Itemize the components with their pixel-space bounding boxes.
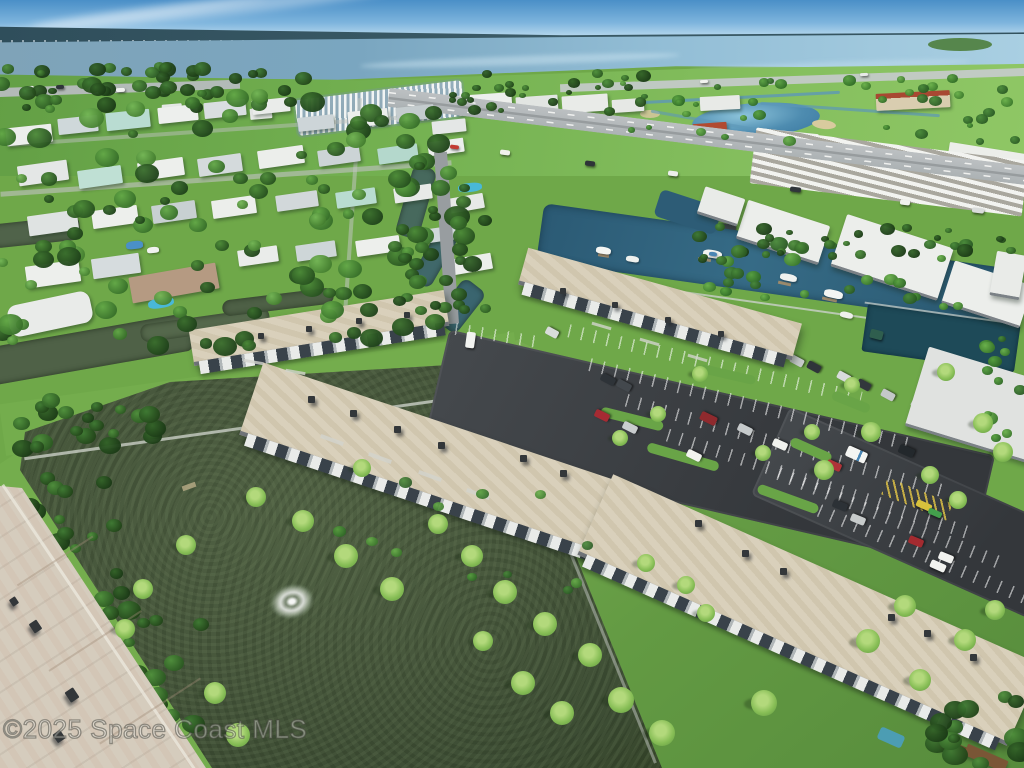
car xyxy=(806,360,822,374)
zone-neighborhood-trees xyxy=(177,316,196,331)
zone-lawn-shrubs xyxy=(399,477,412,487)
zone-creek-trees xyxy=(396,224,410,235)
zone-golf-trees xyxy=(983,108,995,117)
rooftop-vent xyxy=(560,288,566,294)
zone-right-edge-trees xyxy=(982,366,993,375)
zone-creek-trees xyxy=(451,288,467,301)
zone-neighborhood-trees xyxy=(147,336,170,354)
zone-lawn-shrubs xyxy=(582,541,593,550)
car-highway xyxy=(668,170,679,176)
zone-highway-scrub xyxy=(934,235,942,241)
zone-pond-bank-trees xyxy=(164,655,184,671)
zone-neighborhood-trees xyxy=(407,226,427,242)
palm-tree xyxy=(533,612,557,636)
palm-tree xyxy=(493,580,517,604)
palm-tree xyxy=(608,687,634,713)
zone-neighborhood-trees xyxy=(222,109,238,122)
zone-neighborhood-trees xyxy=(362,208,383,225)
zone-creek-trees xyxy=(463,256,482,271)
zone-neighborhood-trees xyxy=(300,92,325,112)
zone-highway-scrub xyxy=(765,234,774,241)
palm-tree xyxy=(844,377,860,393)
zone-right-edge-trees xyxy=(994,377,1003,384)
palm-tree xyxy=(204,682,226,704)
car xyxy=(880,388,896,402)
zone-shore-trees xyxy=(48,88,57,95)
zone-neighborhood-trees xyxy=(200,338,213,348)
zone-neighborhood-trees xyxy=(346,132,366,148)
zone-neighborhood-trees xyxy=(45,105,55,113)
zone-pond-bank-trees xyxy=(70,426,82,436)
zone-golf-trees xyxy=(783,136,795,146)
palm-tree xyxy=(380,577,404,601)
zone-golf-trees xyxy=(641,94,647,99)
zone-pond-bank-trees xyxy=(106,519,122,532)
zone-neighborhood-trees xyxy=(425,106,442,119)
zone-neighborhood-trees xyxy=(247,307,262,319)
zone-golf-trees xyxy=(714,84,721,90)
rooftop-vent xyxy=(612,302,618,308)
rooftop-vent xyxy=(306,326,312,332)
zone-neighborhood-trees xyxy=(323,288,336,299)
zone-neighborhood-trees xyxy=(79,267,90,276)
zone-creek-trees xyxy=(478,215,492,226)
zone-shore-trees xyxy=(194,62,211,76)
zone-creek-trees xyxy=(439,275,453,286)
zone-corner-foliage xyxy=(925,724,948,742)
palm-tree xyxy=(861,422,881,442)
zone-right-edge-trees xyxy=(1014,385,1024,394)
zone-shore-trees xyxy=(145,86,161,99)
rooftop-vent xyxy=(404,312,410,318)
zone-neighborhood-trees xyxy=(57,247,81,266)
blue-tarp-boat xyxy=(126,240,144,250)
zone-right-edge-trees xyxy=(1002,429,1012,437)
zone-shore-trees xyxy=(121,67,133,76)
zone-neighborhood-trees xyxy=(171,181,188,194)
zone-right-edge-trees xyxy=(991,434,1001,442)
zone-neighborhood-trees xyxy=(200,282,214,294)
rooftop-vent xyxy=(350,410,357,417)
zone-neighborhood-trees xyxy=(41,172,58,185)
zone-golf-trees xyxy=(947,74,958,83)
palm-tree xyxy=(894,595,916,617)
zone-neighborhood-trees xyxy=(452,243,468,256)
building-white xyxy=(700,95,741,111)
palm-tree xyxy=(334,544,358,568)
aerial-photo: ©2025 Space Coast MLS xyxy=(0,0,1024,768)
zone-golf-trees xyxy=(976,138,984,144)
zone-pond-bank-trees xyxy=(193,618,209,631)
rooftop-vent xyxy=(888,614,895,621)
palm-tree xyxy=(856,629,880,653)
zone-pond-bank-trees xyxy=(96,476,112,489)
zone-shore-trees xyxy=(505,88,516,97)
zone-lawn-shrubs xyxy=(571,578,583,587)
rooftop-vent xyxy=(780,568,787,575)
zone-neighborhood-trees xyxy=(0,258,8,267)
zone-neighborhood-trees xyxy=(388,170,411,188)
zone-condo-grounds xyxy=(939,303,947,310)
zone-highway-scrub xyxy=(762,251,770,257)
zone-golf-trees xyxy=(721,134,728,140)
zone-highway-scrub xyxy=(996,236,1003,242)
zone-highway-scrub xyxy=(854,230,863,237)
palm-tree xyxy=(814,460,834,480)
zone-shore-trees xyxy=(19,86,36,99)
car-causeway xyxy=(860,73,868,76)
palm-tree xyxy=(353,459,371,477)
zone-pond-bank-trees xyxy=(110,568,123,579)
zone-neighborhood-trees xyxy=(113,328,127,339)
zone-condo-grounds xyxy=(861,275,873,284)
zone-condo-grounds xyxy=(703,282,715,292)
zone-creek-trees xyxy=(430,301,441,309)
zone-creek-trees xyxy=(450,216,468,230)
zone-golf-trees xyxy=(675,99,684,106)
palm-tree xyxy=(937,363,955,381)
zone-neighborhood-trees xyxy=(242,340,256,351)
zone-shore-trees xyxy=(548,98,557,105)
rooftop-vent xyxy=(356,318,362,324)
zone-creek-trees xyxy=(415,306,426,315)
zone-lawn-shrubs xyxy=(503,571,512,578)
palm-tree xyxy=(292,510,314,532)
zone-neighborhood-trees xyxy=(128,130,138,138)
car-left-road xyxy=(116,88,125,92)
palm-tree xyxy=(650,406,666,422)
zone-neighborhood-trees xyxy=(191,260,204,270)
zone-highway-scrub xyxy=(786,230,793,236)
zone-highway-scrub xyxy=(1006,247,1015,254)
zone-neighborhood-trees xyxy=(135,216,145,224)
zone-neighborhood-trees xyxy=(73,200,95,218)
zone-neighborhood-trees xyxy=(67,227,83,240)
zone-corner-foliage xyxy=(1008,695,1024,708)
zone-highway-scrub xyxy=(824,240,835,249)
zone-neighborhood-trees xyxy=(251,89,268,103)
zone-lawn-shrubs xyxy=(467,573,477,581)
car-causeway xyxy=(700,80,708,83)
car-highway xyxy=(900,199,911,205)
zone-highway-scrub xyxy=(902,224,912,232)
boat xyxy=(147,246,160,253)
rooftop-vent xyxy=(560,470,567,477)
zone-corner-foliage xyxy=(948,734,960,744)
zone-neighborhood-trees xyxy=(95,148,119,167)
zone-shore-trees xyxy=(592,69,604,78)
zone-neighborhood-trees xyxy=(360,329,383,347)
palm-tree xyxy=(550,701,574,725)
zone-golf-trees xyxy=(748,98,758,106)
rooftop-vent xyxy=(695,520,702,527)
zone-golf-trees xyxy=(775,79,787,89)
zone-creek-trees xyxy=(409,275,426,289)
zone-neighborhood-trees xyxy=(329,332,342,342)
zone-pond-bank-trees xyxy=(108,429,119,437)
zone-shore-trees xyxy=(568,78,580,88)
zone-neighborhood-trees xyxy=(374,115,389,127)
rooftop-vent xyxy=(258,333,264,339)
palm-tree xyxy=(246,487,266,507)
zone-condo-grounds xyxy=(760,294,770,302)
zone-neighborhood-trees xyxy=(335,287,351,300)
zone-golf-trees xyxy=(682,111,690,118)
zone-neighborhood-trees xyxy=(249,184,268,200)
zone-neighborhood-trees xyxy=(237,200,248,209)
zone-lawn-shrubs xyxy=(366,537,378,547)
palm-tree xyxy=(973,413,993,433)
zone-neighborhood-trees xyxy=(310,213,326,226)
zone-pond-bank-trees xyxy=(149,615,163,626)
watermark: ©2025 Space Coast MLS xyxy=(3,716,307,742)
palm-tree xyxy=(578,643,602,667)
palm-tree xyxy=(755,445,771,461)
palm-tree xyxy=(133,579,153,599)
zone-pond-bank-trees xyxy=(82,413,94,422)
palm-tree xyxy=(954,629,976,651)
zone-neighborhood-trees xyxy=(103,205,116,215)
rooftop-vent xyxy=(308,396,315,403)
zone-pond-bank-trees xyxy=(13,417,29,430)
zone-condo-grounds xyxy=(750,281,760,289)
zone-neighborhood-trees xyxy=(338,260,361,279)
zone-condo-grounds xyxy=(731,268,745,279)
palm-tree xyxy=(511,671,535,695)
palm-tree xyxy=(115,619,135,639)
zone-neighborhood-trees xyxy=(154,291,172,305)
palm-tree xyxy=(677,576,695,594)
palm-tree xyxy=(461,545,483,567)
zone-shore-trees xyxy=(37,70,45,76)
zone-creek-trees xyxy=(398,253,411,264)
palm-tree xyxy=(921,466,939,484)
car-highway xyxy=(972,207,985,213)
zone-condo-grounds xyxy=(800,290,809,298)
zone-lawn-shrubs xyxy=(333,526,346,536)
car-highway xyxy=(500,149,511,155)
car xyxy=(544,326,559,339)
zone-corner-foliage xyxy=(957,700,980,718)
zone-pond-bank-trees xyxy=(54,515,65,524)
zone-shore-trees xyxy=(278,85,291,95)
palm-tree xyxy=(993,442,1013,462)
palm-tree xyxy=(985,600,1005,620)
zone-neighborhood-trees xyxy=(7,336,18,345)
zone-neighborhood-trees xyxy=(95,301,117,319)
zone-neighborhood-trees xyxy=(189,218,206,232)
zone-neighborhood-trees xyxy=(321,301,344,319)
zone-golf-trees xyxy=(767,78,774,84)
zone-pond-bank-trees xyxy=(42,393,60,408)
palm-tree xyxy=(473,631,493,651)
zone-right-edge-trees xyxy=(988,356,1002,367)
zone-golf-trees xyxy=(897,76,905,83)
rooftop-vent xyxy=(924,630,931,637)
zone-neighborhood-trees xyxy=(114,190,136,207)
house xyxy=(211,195,257,219)
zone-neighborhood-trees xyxy=(0,314,23,334)
zone-pond-bank-trees xyxy=(30,441,44,453)
zone-highway-scrub xyxy=(828,252,837,260)
zone-condo-grounds xyxy=(844,285,855,294)
palm-tree xyxy=(428,514,448,534)
zone-neighborhood-trees xyxy=(399,113,419,129)
car-highway xyxy=(790,186,802,192)
zone-highway-scrub xyxy=(957,244,972,256)
zone-highway-scrub xyxy=(945,228,952,233)
zone-highway-scrub xyxy=(715,223,725,231)
zone-pond-bank-trees xyxy=(91,402,103,412)
palm-tree xyxy=(612,430,628,446)
zone-creek-trees xyxy=(415,242,429,253)
zone-neighborhood-trees xyxy=(306,175,318,185)
palm-tree xyxy=(751,690,777,716)
house xyxy=(91,253,141,279)
zone-neighborhood-trees xyxy=(440,166,458,180)
zone-neighborhood-trees xyxy=(215,240,230,252)
zone-corner-foliage xyxy=(972,757,989,768)
zone-neighborhood-trees xyxy=(296,151,307,160)
zone-shore-trees xyxy=(284,97,297,107)
zone-condo-grounds xyxy=(720,287,731,296)
zone-condo-grounds xyxy=(903,293,917,304)
palm-tree xyxy=(804,424,820,440)
green-island-point xyxy=(928,38,992,51)
zone-neighborhood-trees xyxy=(327,142,345,157)
zone-highway-scrub xyxy=(777,250,784,256)
zone-neighborhood-trees xyxy=(213,337,237,356)
zone-condo-grounds xyxy=(924,240,936,250)
palm-tree xyxy=(697,604,715,622)
zone-shore-trees xyxy=(494,84,503,92)
rooftop-vent xyxy=(742,550,749,557)
car-highway xyxy=(585,160,596,166)
zone-neighborhood-trees xyxy=(396,134,415,149)
zone-shore-trees xyxy=(159,63,172,73)
zone-neighborhood-trees xyxy=(260,172,276,185)
condo-across-canal xyxy=(989,251,1024,301)
zone-shore-trees xyxy=(229,73,242,83)
zone-neighborhood-trees xyxy=(44,195,55,203)
palm-tree xyxy=(909,669,931,691)
palm-tree xyxy=(649,720,675,746)
palm-tree xyxy=(637,554,655,572)
zone-shore-trees xyxy=(449,92,457,98)
zone-golf-trees xyxy=(1001,97,1014,107)
zone-neighborhood-trees xyxy=(425,314,445,330)
zone-neighborhood-trees xyxy=(25,280,38,290)
walkway xyxy=(591,322,611,330)
zone-shore-trees xyxy=(295,72,312,86)
zone-shore-trees xyxy=(180,84,195,96)
house xyxy=(275,190,319,212)
rooftop-vent xyxy=(438,442,445,449)
zone-neighborhood-trees xyxy=(427,134,450,153)
zone-golf-trees xyxy=(628,127,635,133)
zone-corner-foliage xyxy=(1007,742,1024,762)
boat xyxy=(840,311,854,320)
zone-shore-trees xyxy=(248,70,258,78)
zone-neighborhood-trees xyxy=(27,128,52,148)
zone-golf-trees xyxy=(753,110,766,120)
zone-neighborhood-trees xyxy=(233,173,248,185)
palm-tree xyxy=(176,535,196,555)
palm-tree xyxy=(949,491,967,509)
zone-neighborhood-trees xyxy=(343,209,355,218)
zone-pond-bank-trees xyxy=(137,618,150,628)
rooftop-vent xyxy=(970,654,977,661)
zone-pond-bank-trees xyxy=(99,437,120,454)
zone-creek-trees xyxy=(459,305,470,314)
car-left-road xyxy=(56,85,64,89)
zone-neighborhood-trees xyxy=(392,318,414,335)
zone-shore-trees xyxy=(197,90,206,97)
zone-shore-trees xyxy=(472,85,480,92)
zone-highway-scrub xyxy=(700,254,708,260)
zone-neighborhood-trees xyxy=(108,278,128,294)
zone-right-edge-trees xyxy=(980,342,994,353)
zone-neighborhood-trees xyxy=(208,160,224,173)
zone-shore-trees xyxy=(621,75,629,81)
zone-right-edge-trees xyxy=(1000,348,1010,356)
zone-condo-grounds xyxy=(784,253,801,267)
zone-highway-scrub xyxy=(908,249,919,258)
rooftop-vent xyxy=(520,455,527,462)
zone-neighborhood-trees xyxy=(318,184,331,194)
zone-condo-grounds xyxy=(893,278,905,288)
zone-neighborhood-trees xyxy=(126,101,145,117)
zone-creek-trees xyxy=(431,180,450,196)
palm-tree xyxy=(692,366,708,382)
rooftop-vent xyxy=(394,426,401,433)
zone-creek-trees xyxy=(480,304,491,313)
zone-golf-trees xyxy=(905,89,914,96)
zone-condo-grounds xyxy=(937,255,946,262)
zone-golf-trees xyxy=(696,128,706,136)
zone-neighborhood-trees xyxy=(353,284,372,299)
rooftop-vent xyxy=(718,331,724,337)
zone-highway-scrub xyxy=(716,256,727,265)
zone-highway-scrub xyxy=(795,242,810,254)
zone-highway-scrub xyxy=(855,250,866,259)
zone-highway-scrub xyxy=(731,245,747,258)
rooftop-vent xyxy=(665,317,671,323)
